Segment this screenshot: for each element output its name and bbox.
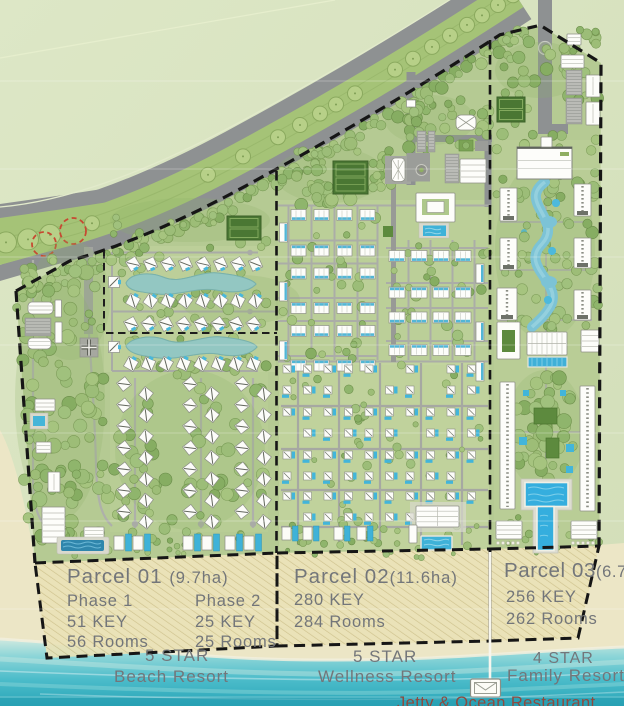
- svg-text:Parcel 03(6.7ha): Parcel 03(6.7ha): [504, 559, 624, 582]
- svg-text:Beach Resort: Beach Resort: [114, 667, 229, 686]
- svg-text:262 Rooms: 262 Rooms: [506, 610, 598, 628]
- svg-text:51 KEY: 51 KEY: [67, 613, 128, 631]
- svg-text:Family Resort: Family Resort: [507, 666, 624, 685]
- svg-text:5 STAR: 5 STAR: [145, 646, 209, 665]
- svg-text:Wellness Resort: Wellness Resort: [318, 667, 456, 686]
- svg-text:Jetty & Ocean Restaurant: Jetty & Ocean Restaurant: [397, 694, 596, 706]
- svg-text:Phase 1: Phase 1: [67, 592, 133, 610]
- svg-text:Parcel 02(11.6ha): Parcel 02(11.6ha): [294, 565, 458, 588]
- svg-text:284 Rooms: 284 Rooms: [294, 613, 386, 631]
- svg-text:5 STAR: 5 STAR: [353, 647, 417, 666]
- svg-text:280 KEY: 280 KEY: [294, 591, 365, 609]
- svg-text:256 KEY: 256 KEY: [506, 588, 577, 606]
- svg-text:4 STAR: 4 STAR: [533, 650, 594, 667]
- svg-text:56 Rooms: 56 Rooms: [67, 633, 149, 651]
- svg-text:25 KEY: 25 KEY: [195, 613, 256, 631]
- svg-text:Parcel 01 (9.7ha): Parcel 01 (9.7ha): [67, 565, 229, 588]
- svg-text:Phase 2: Phase 2: [195, 592, 261, 610]
